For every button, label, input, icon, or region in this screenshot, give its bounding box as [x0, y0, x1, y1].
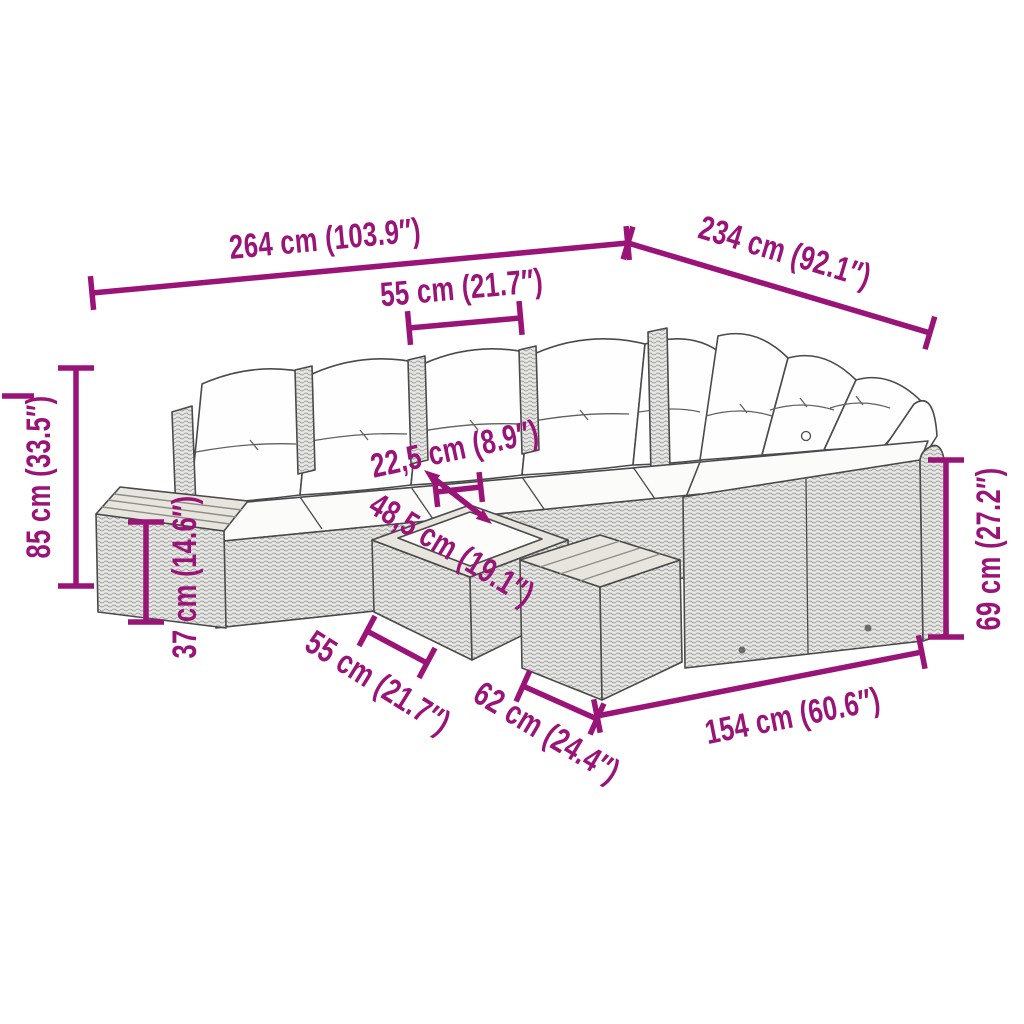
- dimension-label-overall-depth: 234 cm (92.1″): [694, 209, 875, 295]
- screw-cap: [865, 625, 872, 632]
- dimension-overall-depth: 234 cm (92.1″): [623, 191, 945, 349]
- diagram-canvas: 264 cm (103.9″) 234 cm (92.1″) 55 cm (21…: [0, 0, 1024, 1024]
- dimension-label-back-height: 85 cm (33.5″): [21, 395, 58, 558]
- dimension-back-height: 85 cm (33.5″): [2, 368, 94, 586]
- back-post: [295, 366, 315, 474]
- sofa-set-illustration: [96, 328, 948, 700]
- dimension-seat-module-width: 55 cm (21.7″): [379, 262, 548, 347]
- product-dimension-diagram: 264 cm (103.9″) 234 cm (92.1″) 55 cm (21…: [0, 0, 1024, 1024]
- dimension-label-side-table-height: 37 cm (14.6″): [167, 495, 204, 658]
- screw-cap: [739, 647, 746, 654]
- back-post-corner: [648, 328, 670, 475]
- arm-face: [683, 460, 923, 668]
- side-table-front: [96, 514, 226, 628]
- dimension-overall-length: 264 cm (103.9″): [87, 193, 629, 310]
- back-cushions-right: [700, 334, 937, 460]
- ottoman: [520, 535, 682, 700]
- dimension-label-overall-length: 264 cm (103.9″): [228, 212, 423, 267]
- back-cushion: [190, 369, 312, 505]
- back-cushion: [522, 339, 645, 475]
- dimension-label-arm-back-height: 69 cm (27.2″): [971, 467, 1008, 630]
